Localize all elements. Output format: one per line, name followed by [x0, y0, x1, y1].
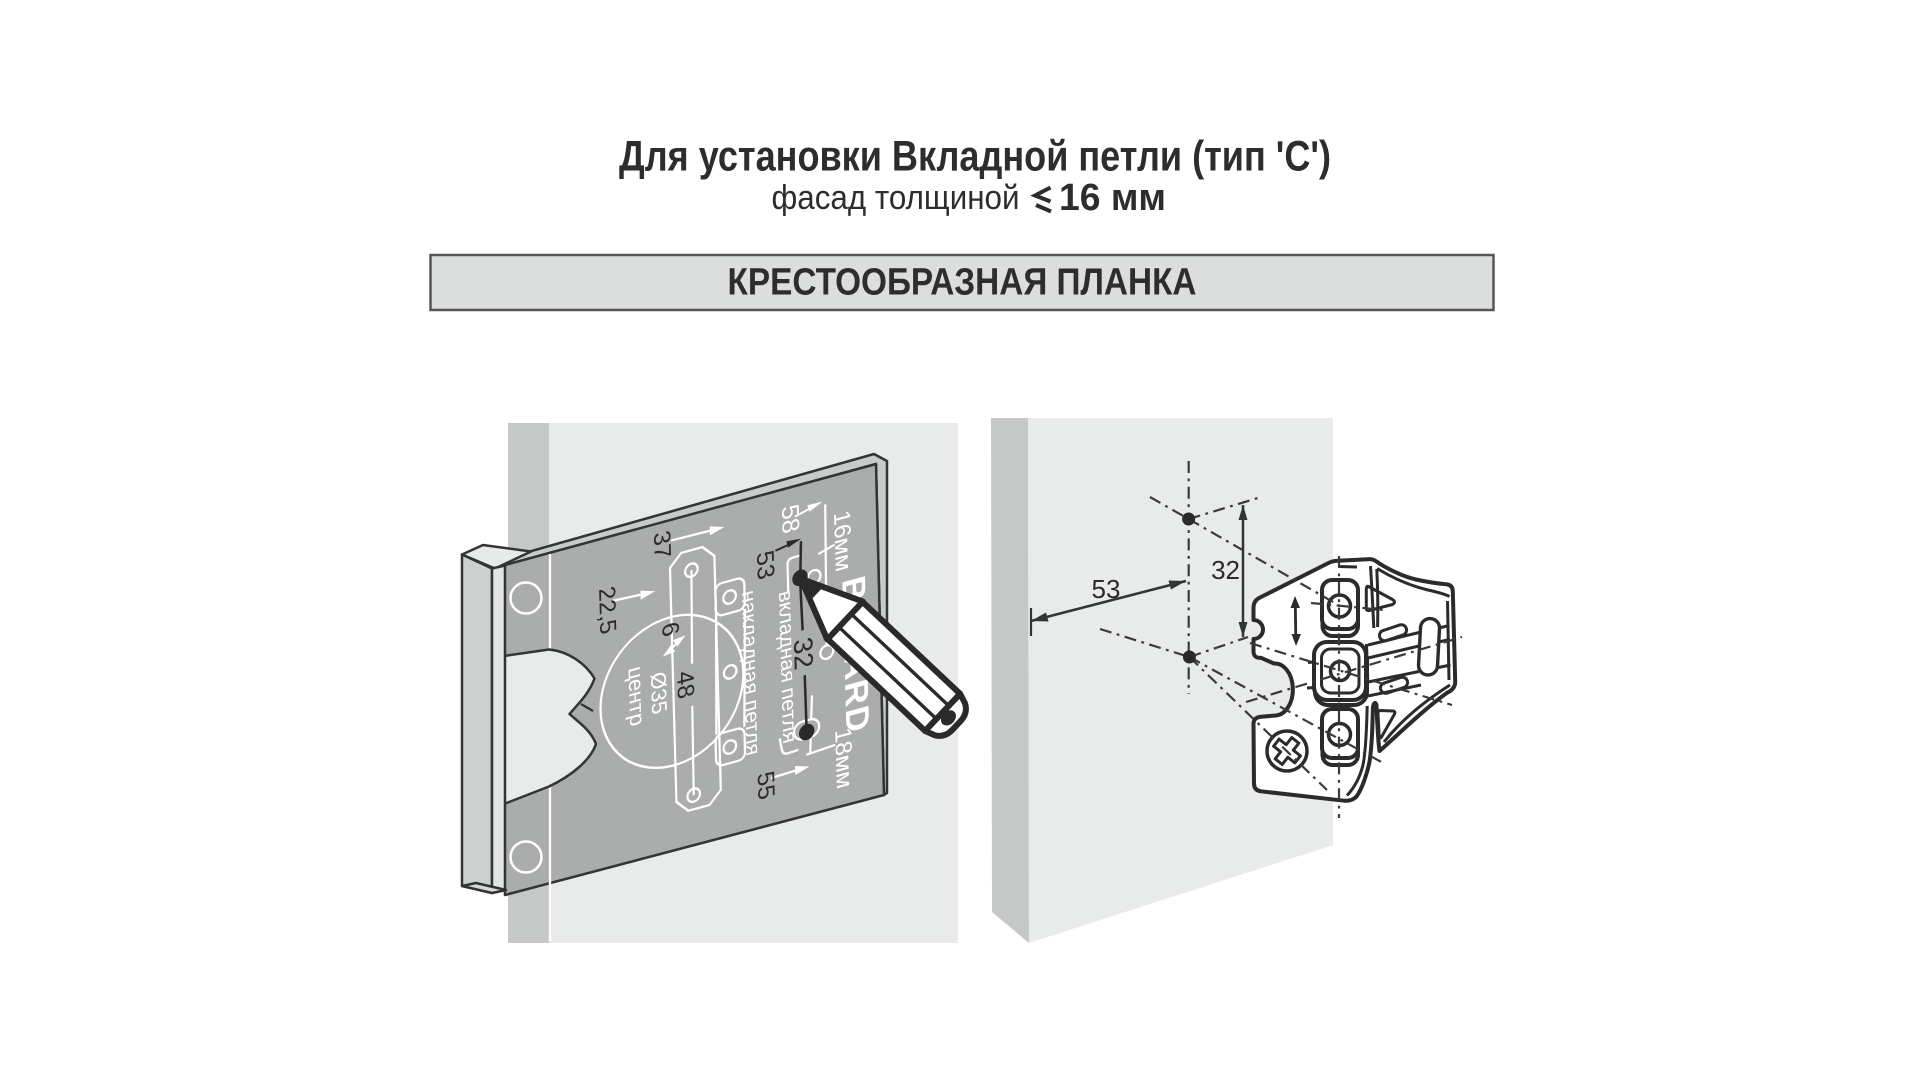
svg-text:Ø35: Ø35: [646, 669, 671, 717]
svg-text:центр: центр: [624, 663, 650, 729]
svg-text:накладная петля: накладная петля: [737, 588, 764, 759]
svg-text:16 мм: 16 мм: [1059, 177, 1166, 219]
svg-text:18мм: 18мм: [830, 725, 858, 792]
svg-text:16мм: 16мм: [828, 508, 856, 575]
svg-text:КРЕСТООБРАЗНАЯ ПЛАНКА: КРЕСТООБРАЗНАЯ ПЛАНКА: [728, 262, 1197, 304]
svg-text:Для установки Вкладной петли (: Для установки Вкладной петли (тип 'С'): [619, 133, 1331, 181]
svg-text:22,5: 22,5: [593, 584, 620, 638]
svg-text:32: 32: [1211, 555, 1240, 585]
svg-text:фасад толщиной: фасад толщиной: [772, 179, 1020, 217]
svg-text:53: 53: [1092, 574, 1121, 604]
svg-text:вкладная петля: вкладная петля: [774, 588, 800, 746]
